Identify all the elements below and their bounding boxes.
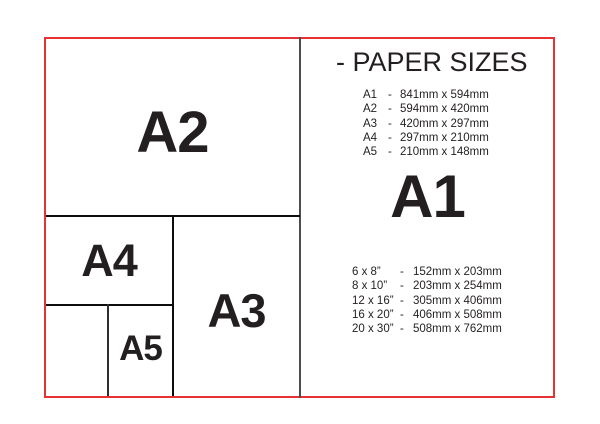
inch-series-label: 12 x 16”: [352, 294, 400, 308]
a-series-label: A1: [363, 88, 388, 102]
inch-series-separator: -: [400, 279, 413, 293]
inch-series-value: 203mm x 254mm: [413, 279, 502, 293]
a-series-separator: -: [388, 102, 400, 116]
paper-box-a4: A4: [46, 217, 172, 304]
paper-box-a5: A5: [109, 306, 172, 396]
inch-series-size-list: 6 x 8” - 152mm x 203mm 8 x 10” - 203mm x…: [352, 265, 502, 337]
a-series-separator: -: [388, 131, 400, 145]
paper-box-a4-label: A4: [81, 238, 137, 283]
paper-box-a2-label: A2: [136, 104, 208, 162]
inch-series-value: 406mm x 508mm: [413, 308, 502, 322]
inch-series-label: 20 x 30”: [352, 322, 400, 336]
inch-series-value: 152mm x 203mm: [413, 265, 502, 279]
a-series-label: A2: [363, 102, 388, 116]
paper-sizes-infographic: A2 A4 A3 A5 - PAPER SIZES A1 - 841mm x 5…: [0, 0, 600, 424]
a-series-size-list: A1 - 841mm x 594mm A2 - 594mm x 420mm A3…: [363, 88, 489, 160]
a-series-value: 297mm x 210mm: [400, 131, 489, 145]
a-series-value: 841mm x 594mm: [400, 88, 489, 102]
a-series-separator: -: [388, 117, 400, 131]
inch-series-separator: -: [400, 322, 413, 336]
a-series-value: 210mm x 148mm: [400, 145, 489, 159]
a-series-value: 420mm x 297mm: [400, 117, 489, 131]
a-series-value: 594mm x 420mm: [400, 102, 489, 116]
paper-box-unlabeled: [46, 306, 107, 396]
inch-series-label: 16 x 20”: [352, 308, 400, 322]
a-series-separator: -: [388, 145, 400, 159]
inch-series-value: 508mm x 762mm: [413, 322, 502, 336]
paper-box-a3-label: A3: [207, 287, 265, 334]
a-series-label: A4: [363, 131, 388, 145]
a-series-label: A5: [363, 145, 388, 159]
inch-series-label: 8 x 10”: [352, 279, 400, 293]
paper-box-a2: A2: [46, 39, 299, 215]
paper-box-a3: A3: [174, 217, 299, 396]
page-title: - PAPER SIZES: [336, 48, 528, 76]
inch-series-label: 6 x 8”: [352, 265, 400, 279]
inch-series-separator: -: [400, 294, 413, 308]
inch-series-separator: -: [400, 265, 413, 279]
paper-box-a5-label: A5: [119, 331, 162, 366]
a-series-label: A3: [363, 117, 388, 131]
inch-series-separator: -: [400, 308, 413, 322]
featured-size-label: A1: [300, 167, 555, 227]
a-series-separator: -: [388, 88, 400, 102]
inch-series-value: 305mm x 406mm: [413, 294, 502, 308]
